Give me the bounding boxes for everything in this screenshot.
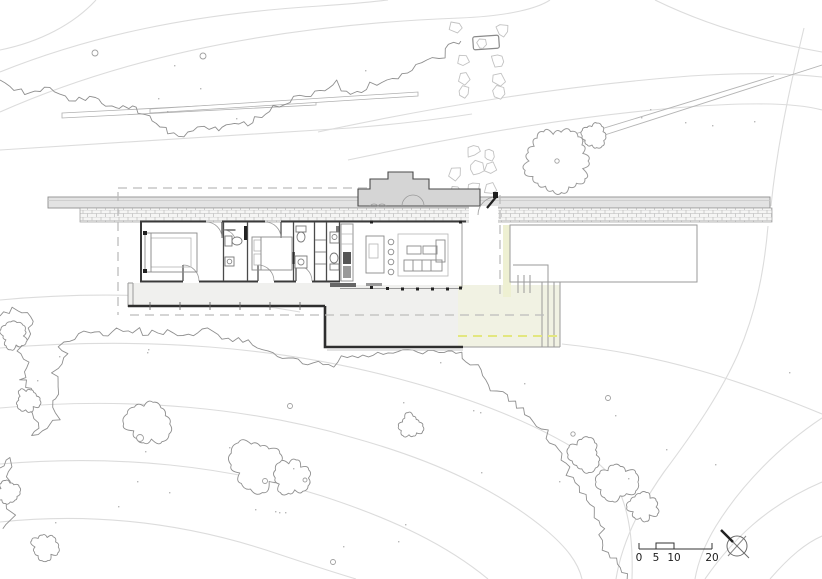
drawing-primitive bbox=[206, 222, 222, 238]
stepping-stone bbox=[493, 73, 506, 86]
oven bbox=[343, 252, 351, 264]
threshold-bench bbox=[330, 283, 356, 287]
ground-dot bbox=[480, 412, 481, 413]
shrub-outline bbox=[595, 464, 638, 502]
ground-dot bbox=[650, 109, 651, 110]
island-stool bbox=[388, 249, 394, 255]
ground-dot bbox=[293, 468, 294, 469]
shrub-outline bbox=[16, 389, 41, 413]
ground-dot bbox=[666, 449, 667, 450]
drawing-primitive bbox=[413, 260, 431, 271]
drawing-primitive bbox=[771, 28, 804, 206]
drawing-primitive bbox=[370, 286, 373, 289]
ground-dot bbox=[158, 98, 159, 99]
ground-dot bbox=[275, 511, 276, 512]
scale-tick-label: 10 bbox=[667, 552, 680, 564]
ground-dot bbox=[405, 524, 406, 525]
stepping-stone bbox=[493, 85, 505, 99]
drawing-primitive bbox=[370, 221, 373, 224]
drawing-primitive bbox=[721, 530, 733, 542]
drawing-primitive bbox=[639, 543, 712, 549]
stepping-stone bbox=[471, 160, 485, 175]
ground-dot bbox=[118, 506, 119, 507]
drawing-primitive bbox=[446, 288, 449, 291]
drawing-primitive bbox=[459, 221, 462, 224]
ground-dot bbox=[628, 478, 629, 479]
ground-dot bbox=[279, 512, 280, 513]
drawing-primitive bbox=[258, 265, 274, 281]
ground-dot bbox=[174, 65, 175, 66]
ground-dot bbox=[236, 118, 237, 119]
island-stool bbox=[388, 269, 394, 275]
stepping-stone bbox=[484, 183, 496, 194]
ground-dot bbox=[285, 512, 286, 513]
ground-dot bbox=[200, 88, 201, 89]
scale-tick-label: 0 bbox=[636, 552, 643, 564]
drawing-primitive bbox=[416, 288, 419, 291]
ground-dot bbox=[147, 352, 148, 353]
drawing-primitive bbox=[330, 264, 339, 270]
drawing-primitive bbox=[341, 234, 353, 244]
drawing-primitive bbox=[606, 396, 611, 401]
bathroom-1 bbox=[225, 236, 242, 266]
stepping-stone bbox=[491, 55, 503, 67]
drawing-primitive bbox=[401, 288, 404, 291]
bed-2 bbox=[252, 237, 292, 270]
drawing-primitive bbox=[288, 404, 293, 409]
stepping-stone bbox=[459, 86, 469, 99]
ground-dot bbox=[137, 481, 138, 482]
ground-dot bbox=[789, 372, 790, 373]
ground-dot bbox=[167, 111, 168, 112]
living-glass-line bbox=[340, 222, 462, 289]
ground-dot bbox=[365, 70, 366, 71]
stepping-stone bbox=[468, 146, 480, 158]
site-plan-sheet: 0 5 10 20 bbox=[0, 0, 822, 579]
bed-1 bbox=[143, 231, 197, 273]
ground-dot bbox=[403, 402, 404, 403]
ground-dot bbox=[37, 380, 38, 381]
ground-dot bbox=[473, 410, 474, 411]
fireplace-chimney-mass bbox=[358, 172, 480, 206]
threshold-step bbox=[366, 283, 382, 286]
closet-dark-panel bbox=[292, 252, 295, 264]
ground-dot bbox=[229, 447, 230, 448]
drawing-primitive bbox=[369, 244, 378, 258]
ground-dot bbox=[59, 356, 60, 357]
tree bbox=[523, 129, 589, 195]
annotations: 0 5 10 20 bbox=[636, 530, 749, 564]
drawing-primitive bbox=[331, 560, 336, 565]
drawing-primitive bbox=[318, 74, 822, 132]
drawing-primitive bbox=[151, 238, 191, 267]
drawing-primitive bbox=[265, 222, 281, 238]
ground-dot bbox=[524, 383, 525, 384]
entry-wall-opening bbox=[469, 206, 498, 223]
drawing-primitive bbox=[562, 344, 822, 414]
ground-dot bbox=[481, 472, 482, 473]
scale-tick-label: 20 bbox=[705, 552, 718, 564]
entry-door-jamb bbox=[493, 192, 498, 198]
ground-dot bbox=[559, 481, 560, 482]
vegetation-scrub-line bbox=[0, 41, 461, 137]
closet-dark-panel bbox=[244, 226, 247, 240]
ground-dot bbox=[440, 362, 441, 363]
rooms-furniture bbox=[143, 221, 462, 291]
north-arrow-icon bbox=[721, 530, 749, 558]
drawing-primitive bbox=[655, 0, 822, 52]
drawing-primitive bbox=[315, 240, 326, 264]
site-plan-drawing: 0 5 10 20 bbox=[0, 0, 822, 579]
east-deck-slab bbox=[510, 225, 697, 282]
shrub-outline bbox=[273, 459, 310, 495]
sink bbox=[330, 232, 339, 243]
shrub-outline bbox=[0, 321, 27, 350]
drawing-primitive bbox=[143, 269, 147, 273]
drawing-primitive bbox=[200, 53, 206, 59]
sink bbox=[225, 257, 234, 266]
timber-retaining-wall bbox=[150, 92, 418, 113]
vegetation-scrub-line bbox=[0, 307, 628, 579]
scale-bar: 0 5 10 20 bbox=[636, 543, 719, 564]
shrub-outline bbox=[31, 535, 60, 562]
shrub-outline bbox=[123, 401, 172, 444]
scale-tick-label: 5 bbox=[653, 552, 660, 564]
ground-dot bbox=[641, 117, 642, 118]
ground-dot bbox=[169, 492, 170, 493]
stepping-stone bbox=[484, 162, 496, 173]
drawing-primitive bbox=[232, 237, 242, 245]
toilet bbox=[225, 236, 232, 246]
toilet bbox=[296, 226, 306, 232]
ground-dot bbox=[148, 349, 149, 350]
ground-dot bbox=[343, 546, 344, 547]
island-stool bbox=[388, 259, 394, 265]
drawing-primitive bbox=[431, 288, 434, 291]
drawing-primitive bbox=[0, 343, 632, 579]
drawing-primitive bbox=[656, 543, 674, 549]
stepping-stone-path bbox=[449, 22, 508, 199]
ground-dot bbox=[715, 464, 716, 465]
ground-dot bbox=[255, 509, 256, 510]
drawing-primitive bbox=[0, 0, 96, 50]
roof-and-stone-wall bbox=[48, 172, 772, 223]
stone-spine-wall bbox=[80, 208, 772, 222]
drawing-primitive bbox=[571, 432, 575, 436]
fridge bbox=[343, 266, 351, 278]
bathroom-3 bbox=[330, 232, 339, 270]
island-stool bbox=[388, 239, 394, 245]
coffee-table bbox=[407, 246, 421, 254]
drawing-primitive bbox=[770, 536, 822, 579]
shrub-outline bbox=[0, 480, 21, 504]
kitchen bbox=[341, 224, 394, 281]
ground-dot bbox=[754, 121, 755, 122]
drawing-primitive bbox=[0, 0, 388, 72]
living-area bbox=[398, 234, 448, 276]
bathroom-2 bbox=[295, 226, 307, 268]
ground-dot bbox=[685, 122, 686, 123]
coffee-table bbox=[423, 246, 437, 254]
tree-canopy bbox=[523, 129, 589, 195]
drawing-primitive bbox=[143, 231, 147, 235]
stepping-stone bbox=[485, 149, 494, 161]
stepping-stone bbox=[449, 168, 461, 181]
drawing-primitive bbox=[297, 232, 305, 242]
ground-dot bbox=[55, 522, 56, 523]
hillside-path-edge bbox=[586, 65, 822, 141]
shrub-outline bbox=[567, 437, 600, 474]
ground-dot bbox=[398, 541, 399, 542]
ground-dot bbox=[615, 415, 616, 416]
ground-dot bbox=[145, 451, 146, 452]
drawing-primitive bbox=[254, 254, 261, 265]
stepping-stone bbox=[459, 73, 471, 86]
stepping-stone bbox=[449, 22, 462, 33]
drawing-primitive bbox=[386, 287, 389, 290]
vanity bbox=[295, 256, 307, 268]
shrub-outline bbox=[627, 491, 659, 521]
wardrobe bbox=[315, 240, 326, 264]
shrub-outline bbox=[581, 123, 606, 149]
drawing-primitive bbox=[459, 287, 462, 290]
ground-dot bbox=[712, 125, 713, 126]
shrub-outline bbox=[398, 412, 424, 437]
drawing-primitive bbox=[92, 50, 98, 56]
stepping-stone bbox=[458, 55, 470, 65]
drawing-primitive bbox=[254, 240, 261, 251]
toilet bbox=[330, 253, 338, 263]
